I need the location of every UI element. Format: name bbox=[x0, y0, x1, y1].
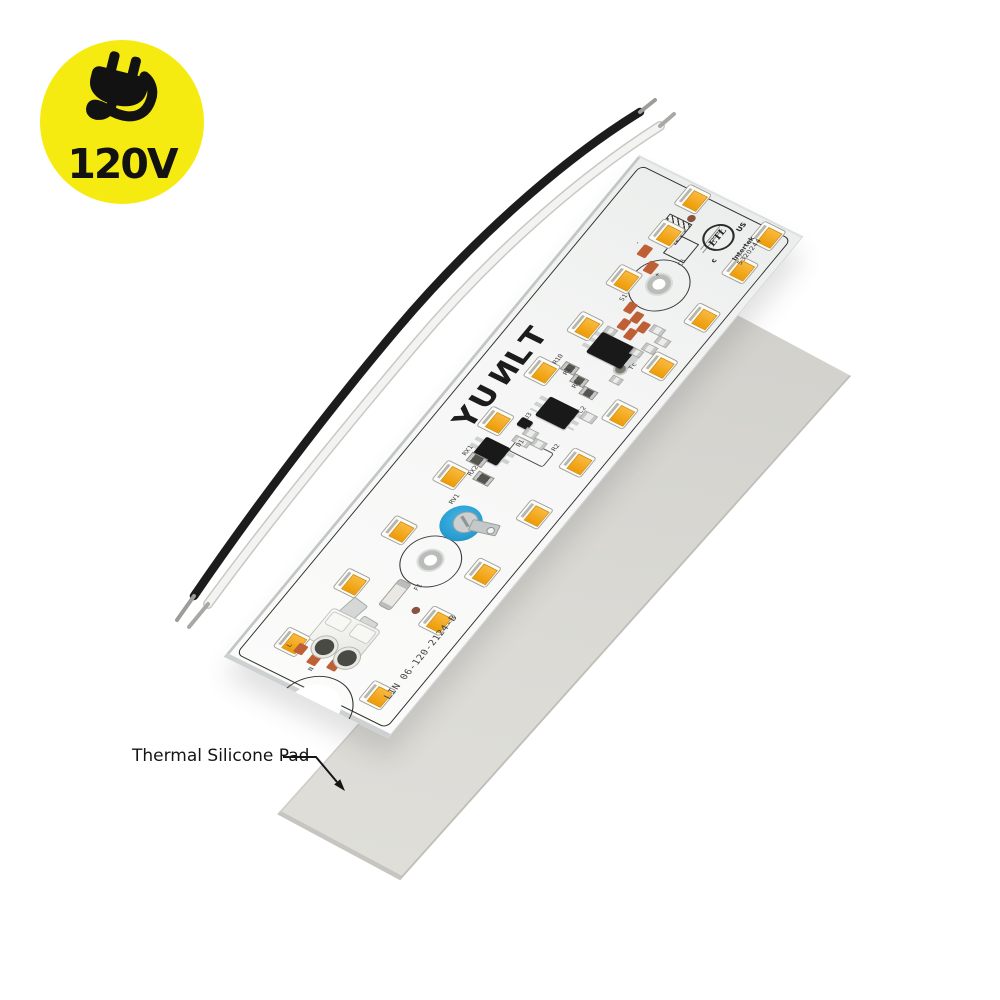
voltage-badge: 120V bbox=[40, 40, 204, 204]
annotation-label: Thermal Silicone Pad bbox=[132, 746, 309, 766]
badge-voltage-label: 120V bbox=[40, 140, 204, 188]
wire-white-stripped-tip bbox=[660, 114, 674, 126]
wire-black-stripped-tip bbox=[177, 596, 194, 620]
product-photo-stage: c ETL US Intertek 5320244 bbox=[0, 0, 1000, 1000]
plug-icon bbox=[56, 52, 184, 144]
connector-lever bbox=[323, 611, 352, 633]
etl-prefix: c bbox=[709, 257, 719, 264]
connector-lever bbox=[348, 623, 377, 645]
wire-black-stripped-tip bbox=[640, 100, 655, 112]
wire-white-stripped-tip bbox=[189, 604, 208, 627]
